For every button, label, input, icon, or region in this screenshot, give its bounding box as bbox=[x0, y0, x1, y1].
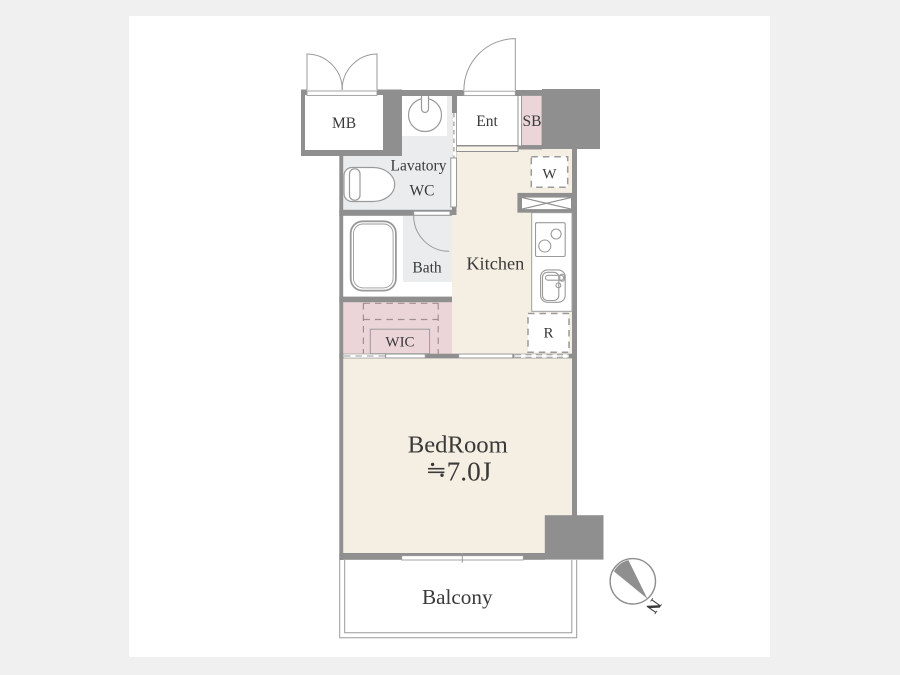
svg-text:7.0J: 7.0J bbox=[447, 457, 492, 487]
svg-text:Ent: Ent bbox=[476, 113, 498, 130]
svg-text:Bath: Bath bbox=[412, 260, 442, 277]
svg-text:Balcony: Balcony bbox=[422, 585, 493, 609]
svg-text:Kitchen: Kitchen bbox=[466, 254, 524, 274]
svg-text:WC: WC bbox=[410, 183, 435, 200]
svg-text:Lavatory: Lavatory bbox=[391, 158, 447, 175]
svg-text:WIC: WIC bbox=[385, 335, 414, 351]
svg-text:R: R bbox=[543, 326, 553, 342]
svg-text:W: W bbox=[542, 167, 557, 183]
svg-text:BedRoom: BedRoom bbox=[408, 432, 508, 459]
svg-text:SB: SB bbox=[523, 113, 542, 130]
svg-text:MB: MB bbox=[332, 115, 356, 132]
